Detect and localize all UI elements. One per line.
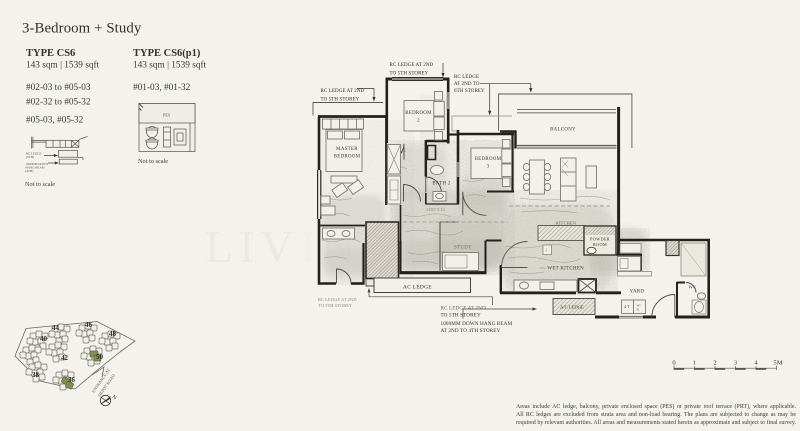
svg-text:#02-03 to #05-03: #02-03 to #05-03 <box>26 83 91 93</box>
svg-text:A/C LEDGE: A/C LEDGE <box>560 305 584 310</box>
svg-text:TO 5TH STOREY: TO 5TH STOREY <box>318 303 353 308</box>
svg-text:Not to scale: Not to scale <box>25 181 55 188</box>
svg-text:TYPE CS6(p1): TYPE CS6(p1) <box>133 48 201 59</box>
svg-text:KITCHEN: KITCHEN <box>556 221 576 226</box>
svg-text:POWDER: POWDER <box>590 237 610 242</box>
svg-text:42: 42 <box>61 354 69 362</box>
svg-text:RC LEDGE: RC LEDGE <box>454 75 479 80</box>
svg-text:BEDROOM: BEDROOM <box>405 111 432 116</box>
svg-text:46: 46 <box>85 321 93 329</box>
svg-text:38: 38 <box>32 371 40 379</box>
svg-text:BEDROOM: BEDROOM <box>334 155 361 160</box>
svg-text:PES: PES <box>163 113 171 118</box>
svg-text:BALCONY: BALCONY <box>550 128 576 133</box>
svg-text:1000MM DOWN HANG BEAM: 1000MM DOWN HANG BEAM <box>441 321 513 327</box>
svg-text:6TH STOREY: 6TH STOREY <box>454 89 485 94</box>
svg-text:44: 44 <box>52 324 60 332</box>
svg-text:~~ WET KITCHEN: ~~ WET KITCHEN <box>540 267 584 272</box>
svg-text:RC LEDGE AT 2ND: RC LEDGE AT 2ND <box>318 297 357 302</box>
svg-text:3-Bedroom + Study: 3-Bedroom + Study <box>22 21 142 37</box>
svg-text:#05-03, #05-32: #05-03, #05-32 <box>26 116 84 126</box>
svg-text:1: 1 <box>693 360 696 367</box>
svg-text:TO 5TH STOREY: TO 5TH STOREY <box>390 72 429 77</box>
svg-text:50: 50 <box>96 353 104 361</box>
svg-text:3: 3 <box>487 165 490 170</box>
svg-text:BEDROOM: BEDROOM <box>475 157 502 162</box>
svg-text:5M: 5M <box>773 360 782 367</box>
svg-text:RC LEDGE AT 2ND: RC LEDGE AT 2ND <box>441 306 487 312</box>
svg-text:AT 2ND TO 4TH STOREY: AT 2ND TO 4TH STOREY <box>441 328 501 334</box>
svg-text:BATH 2: BATH 2 <box>432 182 450 187</box>
svg-text:36: 36 <box>68 376 76 384</box>
svg-text:STUDY: STUDY <box>454 246 472 251</box>
svg-text:TO 5TH STOREY: TO 5TH STOREY <box>441 313 481 319</box>
svg-text:4-T: 4-T <box>624 304 630 309</box>
svg-text:48: 48 <box>109 330 117 338</box>
svg-text:143 sqm | 1539 sqft: 143 sqm | 1539 sqft <box>26 60 100 71</box>
svg-text:(5TH): (5TH) <box>26 155 34 159</box>
svg-text:LIV: LIV <box>205 221 300 272</box>
svg-text:1: 1 <box>546 248 548 253</box>
svg-text:WC: WC <box>689 285 697 290</box>
svg-text:(4TH): (4TH) <box>25 169 33 173</box>
svg-text:RC LEDGE AT 2ND: RC LEDGE AT 2ND <box>321 89 365 94</box>
svg-text:143 sqm | 1539 sqft: 143 sqm | 1539 sqft <box>133 60 207 71</box>
svg-text:AC LEDGE: AC LEDGE <box>403 285 432 291</box>
svg-text:2: 2 <box>417 119 420 124</box>
svg-text:RC LEDGE AT 2ND: RC LEDGE AT 2ND <box>390 63 434 68</box>
svg-text:TYPE CS6: TYPE CS6 <box>26 48 75 59</box>
svg-text:YARD: YARD <box>630 290 645 295</box>
svg-text:AT 2ND TO: AT 2ND TO <box>454 82 480 87</box>
svg-text:#01-03, #01-32: #01-03, #01-32 <box>133 83 191 93</box>
svg-text:ROOM: ROOM <box>593 242 607 247</box>
svg-text:SERVICES: SERVICES <box>426 208 445 212</box>
svg-text:#02-32 to #05-32: #02-32 to #05-32 <box>26 98 91 108</box>
svg-text:40: 40 <box>40 335 48 343</box>
svg-text:TO 5TH STOREY: TO 5TH STOREY <box>321 98 360 103</box>
svg-text:2: 2 <box>713 360 716 367</box>
svg-text:MASTER: MASTER <box>336 147 358 152</box>
svg-text:Not to scale: Not to scale <box>138 158 168 165</box>
